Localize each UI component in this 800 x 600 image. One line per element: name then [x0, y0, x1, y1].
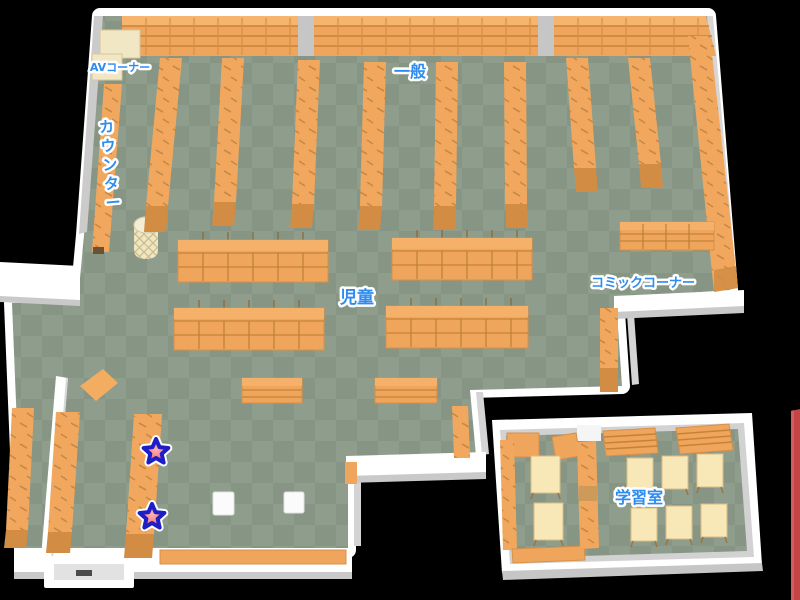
neighbor-building-edge [791, 409, 800, 600]
top-shelf-left [122, 16, 298, 56]
study-table-1 [531, 456, 560, 499]
wall-pillar-1 [298, 16, 314, 56]
study-table-4 [662, 456, 688, 495]
wall-pillar-2 [538, 16, 554, 56]
corner-shelf-stub [345, 462, 357, 484]
study-shelf-striped-1 [603, 428, 658, 456]
entrance-door [44, 556, 134, 588]
top-shelf-row [122, 16, 716, 56]
bookshelf-aisle-6 [504, 62, 528, 228]
label-children: 児童 [339, 287, 374, 308]
return-box-2 [284, 492, 304, 513]
west-bump-wall [0, 262, 80, 302]
study-divider-shelf [577, 441, 599, 549]
comic-shelf [620, 222, 714, 250]
label-comic-corner: コミックコーナー [591, 276, 695, 291]
label-general: 一般 [394, 62, 426, 81]
kids-shelf-row2-right [386, 298, 528, 348]
step-edge-shelf [452, 406, 470, 458]
study-table-2 [534, 503, 563, 546]
bookshelf-aisle-5 [433, 62, 458, 230]
return-box-1 [213, 492, 234, 515]
study-shelf-south [512, 546, 585, 563]
study-table-6 [631, 508, 657, 547]
library-map: AVコーナー 一般 カウンター 児童 コミックコーナー 学習室 [0, 0, 800, 600]
label-av-corner: AVコーナー [90, 61, 150, 74]
door-handle [76, 570, 92, 576]
study-room-door [577, 425, 601, 441]
kids-shelf-row1-right [392, 230, 532, 280]
kids-bench-2 [375, 378, 437, 403]
bottom-wall-shelf [160, 550, 346, 564]
study-shelf-striped-2 [676, 424, 733, 454]
kids-shelf-row1-left [178, 232, 328, 282]
top-shelf-center [314, 16, 538, 56]
study-table-7 [666, 506, 692, 545]
study-table-5 [697, 454, 723, 493]
label-study-room: 学習室 [615, 488, 663, 507]
kids-shelf-row2-left [174, 300, 324, 350]
kids-bench-1 [242, 378, 302, 403]
study-table-8 [701, 504, 727, 543]
comic-shelf-lower [600, 308, 618, 392]
